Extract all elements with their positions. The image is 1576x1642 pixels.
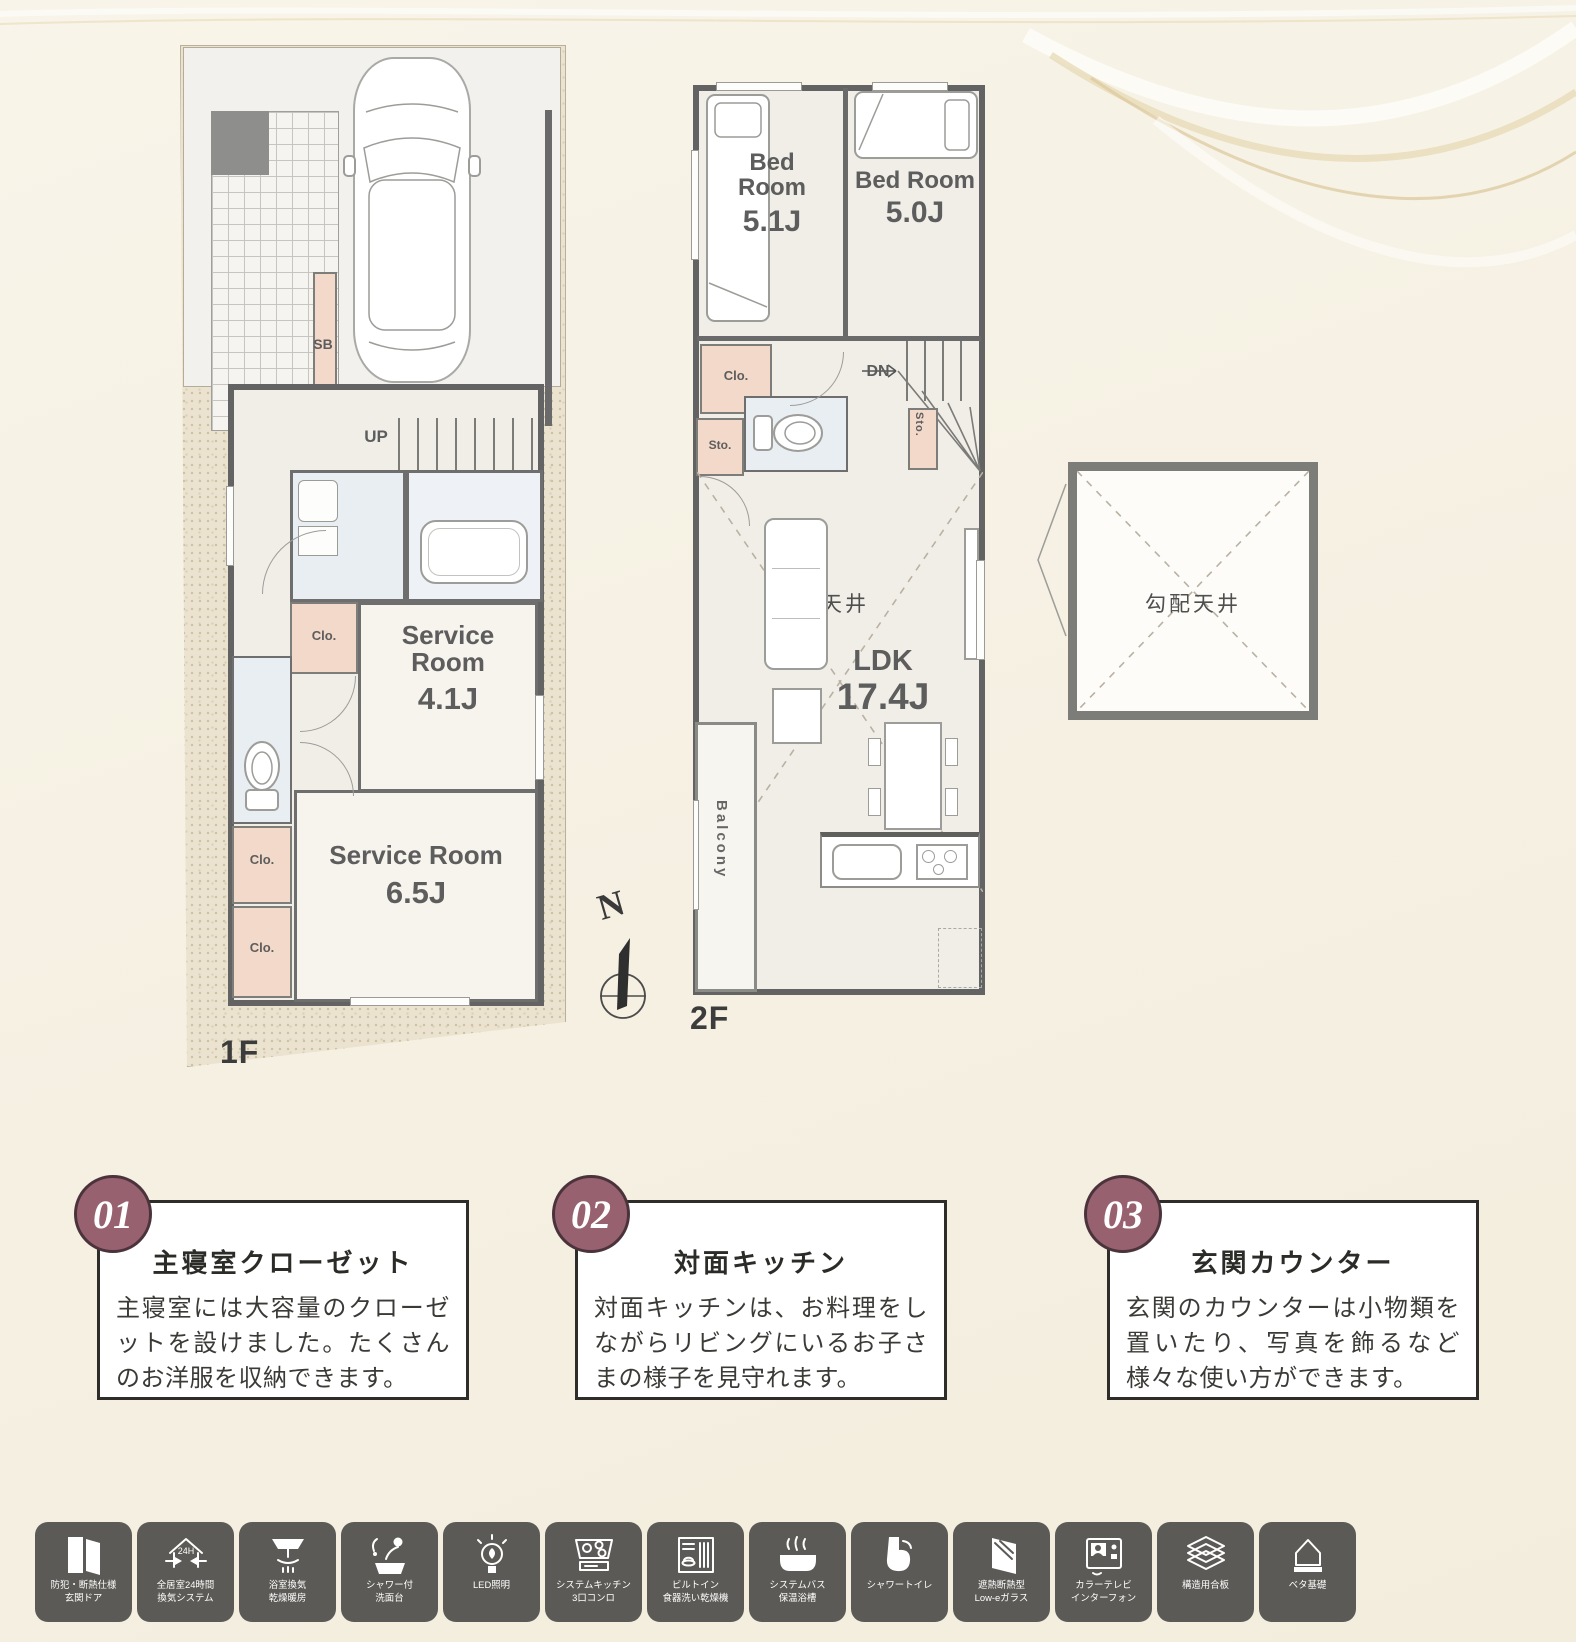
feature-body-2: 対面キッチンは、お料理をしながらリビングにいるお子さまの様子を見守れます。 <box>594 1292 928 1397</box>
feature-number-badge-3: 03 <box>1084 1175 1162 1253</box>
window-2f-ldk-east <box>976 560 985 660</box>
page: SB UP Clo. Service Room 4.1J Clo. <box>0 0 1576 1642</box>
shower-vanity-icon <box>367 1530 413 1580</box>
bedroom-2-size: 5.0J <box>848 197 982 229</box>
equipment-tile-shower-toilet: シャワートイレ <box>851 1522 948 1622</box>
bed-icon-2 <box>853 90 979 160</box>
ldk-label: LDK 17.4J <box>818 646 948 717</box>
equipment-tile-plywood: 構造用合板 <box>1157 1522 1254 1622</box>
decor-swirl <box>976 0 1576 380</box>
chair-icon-a <box>868 738 881 766</box>
feature-body-3: 玄関のカウンターは小物類を置いたり、写真を飾るなど様々な使い方ができます。 <box>1126 1292 1460 1397</box>
equipment-tile-security-door: 防犯・断熱仕様 玄関ドア <box>35 1522 132 1622</box>
ldk-size: 17.4J <box>818 678 948 717</box>
equipment-label: シャワートイレ <box>855 1580 944 1592</box>
loft-door-mark <box>1034 480 1070 700</box>
feature-card-2: 02 対面キッチン 対面キッチンは、お料理をしながらリビングにいるお子さまの様子… <box>575 1200 947 1400</box>
kitchen-sink-icon <box>832 844 902 880</box>
equipment-label2: 洗面台 <box>345 1593 434 1605</box>
feature-card-1: 01 主寝室クローゼット 主寝室には大容量のクローゼットを設けました。たくさんの… <box>97 1200 469 1400</box>
floorplan-2f: Bed Room 5.1J Bed Room 5.0J Clo. Sto. DN… <box>0 0 1050 1120</box>
equipment-label: 全居室24時間 <box>141 1580 230 1592</box>
shower-toilet-icon <box>877 1530 923 1580</box>
tv-intercom-icon <box>1081 1530 1127 1580</box>
chair-icon-d <box>945 788 958 816</box>
storage-1-label: Sto. <box>696 438 744 452</box>
dining-table-icon <box>884 722 942 830</box>
equipment-tile-bath-dryer: 浴室換気 乾燥暖房 <box>239 1522 336 1622</box>
equipment-label: LED照明 <box>447 1580 536 1592</box>
equipment-label2: Low-eガラス <box>957 1593 1046 1605</box>
equipment-label: 防犯・断熱仕様 <box>39 1580 128 1592</box>
equipment-label: シャワー付 <box>345 1580 434 1592</box>
storage-2-label: Sto. <box>913 412 925 437</box>
balcony-label: Balcony <box>713 800 730 879</box>
equipment-label: システムバス <box>753 1580 842 1592</box>
feature-title-2: 対面キッチン <box>588 1243 934 1280</box>
equipment-tile-shower-vanity: シャワー付 洗面台 <box>341 1522 438 1622</box>
bedroom-1-label: Bed Room 5.1J <box>712 150 832 238</box>
ldk-name: LDK <box>818 646 948 676</box>
equipment-tile-bathtub: システムバス 保温浴槽 <box>749 1522 846 1622</box>
north-label: N <box>593 881 630 929</box>
equipment-label2: 乾燥暖房 <box>243 1593 332 1605</box>
bedroom-2-name: Bed Room <box>848 168 982 193</box>
sofa-cushion-line <box>772 568 820 569</box>
equipment-tile-intercom: カラーテレビ インターフォン <box>1055 1522 1152 1622</box>
equipment-tile-foundation: ベタ基礎 <box>1259 1522 1356 1622</box>
equipment-tile-dishwasher: ビルトイン 食器洗い乾燥機 <box>647 1522 744 1622</box>
feature-body-1: 主寝室には大容量のクローゼットを設けました。たくさんのお洋服を収納できます。 <box>116 1292 450 1397</box>
equipment-label: 遮熱断熱型 <box>957 1580 1046 1592</box>
sloped-ceiling-label-loft: 勾配天井 <box>1118 588 1268 618</box>
equipment-tile-ventilation: 24H 全居室24時間 換気システム <box>137 1522 234 1622</box>
bedroom-2-label: Bed Room 5.0J <box>848 168 982 229</box>
equipment-label2: 食器洗い乾燥機 <box>651 1593 740 1605</box>
pantry-hatch <box>938 928 982 988</box>
equipment-label2: 3口コンロ <box>549 1593 638 1605</box>
led-light-icon <box>469 1530 515 1580</box>
equipment-label: 構造用合板 <box>1161 1580 1250 1592</box>
feature-title-3: 玄関カウンター <box>1120 1243 1466 1280</box>
bedroom-1-size: 5.1J <box>712 206 832 238</box>
compass-icon <box>578 924 668 1024</box>
loft-plan: 勾配天井 <box>1020 440 1340 740</box>
bath-dryer-icon <box>265 1530 311 1580</box>
insulated-bathtub-icon <box>775 1530 821 1580</box>
feature-number-badge-2: 02 <box>552 1175 630 1253</box>
equipment-label2: 玄関ドア <box>39 1593 128 1605</box>
feature-title-1: 主寝室クローゼット <box>110 1243 456 1280</box>
chair-icon-b <box>868 788 881 816</box>
equipment-label: ベタ基礎 <box>1263 1580 1352 1592</box>
equipment-label: カラーテレビ <box>1059 1580 1148 1592</box>
stove-burner-c <box>933 864 944 875</box>
window-2f-balcony <box>693 800 699 910</box>
toilet-icon-2f <box>752 404 836 462</box>
bedroom-1-name2: Room <box>712 175 832 200</box>
system-kitchen-icon <box>571 1530 617 1580</box>
sofa-icon <box>764 518 828 670</box>
slab-foundation-icon <box>1285 1530 1331 1580</box>
chair-icon-c <box>945 738 958 766</box>
equipment-label2: 換気システム <box>141 1593 230 1605</box>
dishwasher-icon <box>673 1530 719 1580</box>
ventilation-24h-icon: 24H <box>163 1530 209 1580</box>
ventilation-badge: 24H <box>177 1546 194 1556</box>
equipment-label2: インターフォン <box>1059 1593 1148 1605</box>
floor-label-2f: 2F <box>690 1000 729 1037</box>
window-2f-bed2-top <box>872 82 948 91</box>
low-e-glass-icon <box>979 1530 1025 1580</box>
coffee-table-icon <box>772 688 822 744</box>
window-2f-bed1-west <box>691 150 699 260</box>
feature-card-3: 03 玄関カウンター 玄関のカウンターは小物類を置いたり、写真を飾るなど様々な使… <box>1107 1200 1479 1400</box>
window-2f-bed1-top <box>716 82 802 91</box>
equipment-label: システムキッチン <box>549 1580 638 1592</box>
compass: N <box>572 866 672 1026</box>
equipment-tile-led: LED照明 <box>443 1522 540 1622</box>
equipment-bar: 防犯・断熱仕様 玄関ドア 24H 全居室24時間 換気システム <box>35 1522 1356 1622</box>
security-door-icon <box>61 1530 107 1580</box>
sofa-cushion-line2 <box>772 618 820 619</box>
equipment-label: ビルトイン <box>651 1580 740 1592</box>
feature-number-badge-1: 01 <box>74 1175 152 1253</box>
equipment-tile-low-e-glass: 遮熱断熱型 Low-eガラス <box>953 1522 1050 1622</box>
closet-2f-label: Clo. <box>702 368 770 383</box>
structural-plywood-icon <box>1183 1530 1229 1580</box>
stove-burner-a <box>922 850 935 863</box>
stove-icon <box>916 844 968 880</box>
equipment-label: 浴室換気 <box>243 1580 332 1592</box>
stove-burner-b <box>944 850 957 863</box>
bedroom-1-name: Bed <box>712 150 832 175</box>
equipment-label2: 保温浴槽 <box>753 1593 842 1605</box>
equipment-tile-kitchen: システムキッチン 3口コンロ <box>545 1522 642 1622</box>
dn-label: DN <box>858 364 898 381</box>
